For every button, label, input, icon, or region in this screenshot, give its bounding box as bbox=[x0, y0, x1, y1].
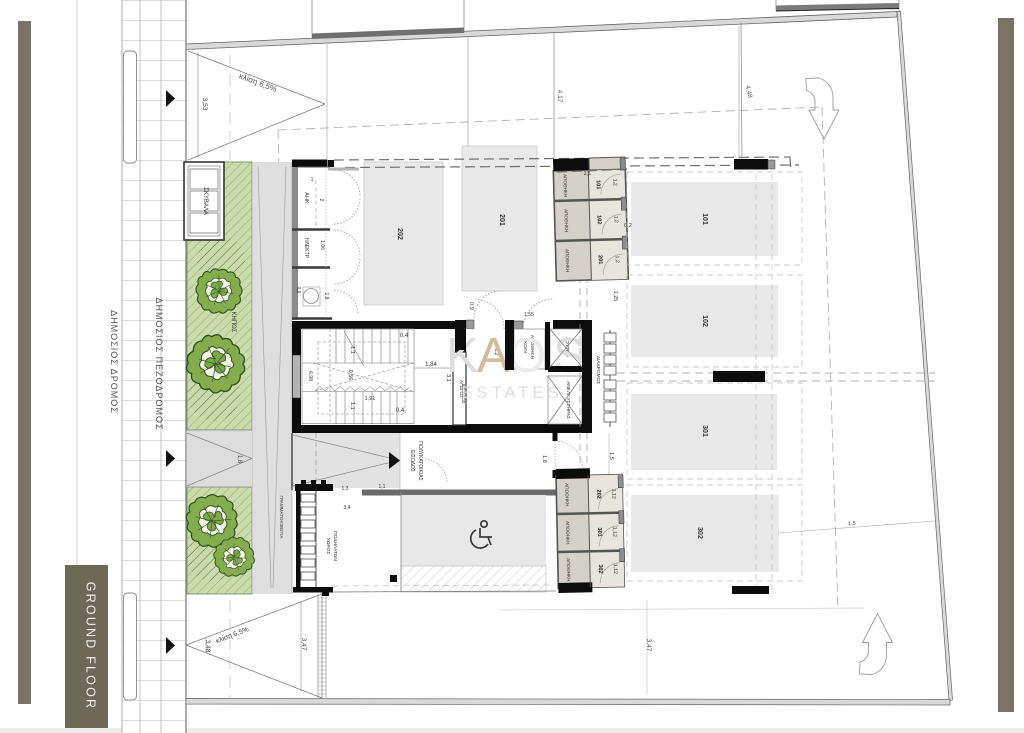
svg-text:2,1: 2,1 bbox=[583, 171, 591, 177]
svg-text:1,84: 1,84 bbox=[425, 362, 437, 368]
svg-text:1,1: 1,1 bbox=[349, 402, 355, 410]
svg-text:1,1: 1,1 bbox=[379, 484, 386, 490]
svg-text:1,8: 1,8 bbox=[323, 293, 329, 300]
svg-text:0,9: 0,9 bbox=[295, 287, 301, 294]
svg-text:ΑΠΟΘΗΚΗ: ΑΠΟΘΗΚΗ bbox=[563, 209, 569, 232]
svg-text:3,4: 3,4 bbox=[344, 505, 351, 511]
svg-text:1,3: 1,3 bbox=[342, 486, 349, 492]
svg-text:1: 1 bbox=[311, 177, 314, 183]
svg-text:1,5: 1,5 bbox=[608, 452, 614, 460]
svg-text:1,06: 1,06 bbox=[319, 240, 325, 250]
svg-text:ΠΟΛΥΚΑΤΟΙΚΙΑΣ: ΠΟΛΥΚΑΤΟΙΚΙΑΣ bbox=[417, 441, 423, 480]
svg-text:102: 102 bbox=[596, 215, 602, 225]
svg-text:ΑΠΟΘΗΚΗ: ΑΠΟΘΗΚΗ bbox=[566, 558, 571, 581]
svg-text:ΑΠΟΘΗΚΗ: ΑΠΟΘΗΚΗ bbox=[565, 521, 570, 544]
svg-text:ΚΗΠΟΣ: ΚΗΠΟΣ bbox=[230, 311, 236, 332]
svg-text:302: 302 bbox=[696, 527, 703, 539]
svg-text:1,12: 1,12 bbox=[611, 527, 617, 537]
svg-text:1,5: 1,5 bbox=[848, 521, 856, 528]
svg-text:0,56: 0,56 bbox=[347, 370, 353, 381]
svg-text:ΣΚΥΒΑΛΑ: ΣΚΥΒΑΛΑ bbox=[202, 187, 208, 215]
svg-text:ΑΗΚ: ΑΗΚ bbox=[303, 192, 309, 204]
svg-text:1,1: 1,1 bbox=[349, 346, 355, 354]
svg-text:2: 2 bbox=[318, 199, 324, 202]
svg-text:101: 101 bbox=[701, 213, 708, 225]
svg-text:S: S bbox=[553, 329, 586, 383]
svg-text:0,9: 0,9 bbox=[468, 302, 474, 310]
svg-text:302: 302 bbox=[597, 564, 603, 573]
svg-text:ΧΩΡΟΣ: ΧΩΡΟΣ bbox=[325, 538, 331, 555]
svg-text:1,2: 1,2 bbox=[613, 216, 619, 223]
svg-text:301: 301 bbox=[596, 527, 602, 536]
svg-text:ΑΝΕΛΚΥΣΤΗΡΑΣ: ΑΝΕΛΚΥΣΤΗΡΑΣ bbox=[565, 381, 571, 419]
svg-text:0,2: 0,2 bbox=[624, 223, 632, 229]
svg-text:ΔΗΜΟΣΙΟΣ ΔΡΟΜΟΣ: ΔΗΜΟΣΙΟΣ ΔΡΟΜΟΣ bbox=[109, 310, 119, 414]
svg-text:1,25: 1,25 bbox=[612, 291, 618, 302]
svg-text:ΑΠΟΘΗΚΗ: ΑΠΟΘΗΚΗ bbox=[564, 483, 569, 506]
svg-text:3,47: 3,47 bbox=[300, 638, 307, 651]
svg-text:ΓΡΑΜΜΑΤΟΚΙΒΩΤΙΑ: ΓΡΑΜΜΑΤΟΚΙΒΩΤΙΑ bbox=[279, 496, 284, 540]
svg-text:ΔΗΜΟΣΙΟΣ ΠΕΖΟΔΡΟΜΟΣ: ΔΗΜΟΣΙΟΣ ΠΕΖΟΔΡΟΜΟΣ bbox=[154, 297, 164, 430]
svg-text:6,98: 6,98 bbox=[307, 371, 313, 381]
svg-text:1,91: 1,91 bbox=[365, 396, 376, 402]
svg-text:1,55: 1,55 bbox=[524, 312, 534, 318]
svg-text:1,12: 1,12 bbox=[612, 564, 618, 574]
svg-text:ESTATES: ESTATES bbox=[461, 383, 563, 402]
svg-text:201: 201 bbox=[597, 255, 603, 265]
svg-text:3,47: 3,47 bbox=[645, 639, 652, 652]
svg-text:ΔΙΑΔΡΟΜΟΣ: ΔΙΑΔΡΟΜΟΣ bbox=[595, 356, 601, 385]
svg-text:3,48: 3,48 bbox=[204, 640, 211, 653]
svg-text:202: 202 bbox=[595, 489, 601, 498]
svg-text:202: 202 bbox=[396, 228, 403, 240]
svg-text:0,4: 0,4 bbox=[396, 408, 405, 414]
svg-text:ΕΙΣΟΔΟΣ: ΕΙΣΟΔΟΣ bbox=[409, 450, 415, 472]
svg-text:ΑΠΟΘΗΚΗ: ΑΠΟΘΗΚΗ bbox=[562, 174, 568, 197]
svg-text:102: 102 bbox=[701, 315, 708, 327]
svg-text:1,2: 1,2 bbox=[612, 179, 618, 186]
svg-text:101: 101 bbox=[595, 180, 601, 190]
svg-text:GROUND FLOOR: GROUND FLOOR bbox=[84, 582, 98, 711]
svg-text:1,2: 1,2 bbox=[614, 256, 620, 263]
svg-text:1,8: 1,8 bbox=[541, 455, 547, 463]
svg-text:1,12: 1,12 bbox=[610, 489, 616, 499]
svg-text:301: 301 bbox=[701, 425, 708, 437]
svg-text:4,17: 4,17 bbox=[556, 90, 563, 103]
svg-text:ΑΠΟΘΗΚΗ: ΑΠΟΘΗΚΗ bbox=[564, 249, 570, 272]
svg-text:ΗΛΕΚΤΡ: ΗΛΕΚΤΡ bbox=[303, 238, 309, 259]
svg-text:0,4: 0,4 bbox=[400, 333, 409, 339]
svg-text:ΠΟΔΗΛΑΤΩΝ: ΠΟΔΗΛΑΤΩΝ bbox=[332, 531, 338, 561]
svg-text:3,53: 3,53 bbox=[201, 98, 208, 111]
svg-text:201: 201 bbox=[498, 214, 505, 226]
svg-text:1,8: 1,8 bbox=[236, 455, 242, 464]
